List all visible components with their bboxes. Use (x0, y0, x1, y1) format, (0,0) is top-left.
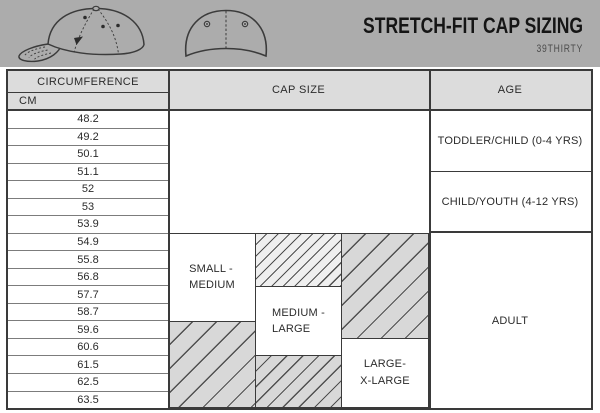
size-label-large-xlarge: LARGE- X-LARGE (342, 338, 428, 407)
cm-value-row: 53.9 (8, 216, 168, 234)
cm-value-row: 60.6 (8, 339, 168, 357)
size-label-small-medium: SMALL - MEDIUM (169, 234, 255, 320)
cap-side-view-illustration (19, 6, 144, 61)
cap-back-view-illustration (186, 11, 267, 57)
age-cell-child-youth: CHILD/YOUTH (4-12 YRS) (429, 172, 591, 233)
size-label-line: SMALL - (189, 261, 235, 278)
size-label-line: X-LARGE (360, 373, 410, 390)
cm-value-row: 53 (8, 199, 168, 217)
hatch-region-small-medium (169, 321, 255, 407)
cap-size-header: CAP SIZE (168, 71, 429, 111)
size-column-medium-large: MEDIUM - LARGE (255, 233, 343, 408)
cm-value-row: 61.5 (8, 356, 168, 374)
sizing-table: CIRCUMFERENCE CM CAP SIZE AGE 48.2 49.2 … (6, 69, 593, 410)
age-header: AGE (429, 71, 591, 111)
age-column: TODDLER/CHILD (0-4 YRS) CHILD/YOUTH (4-1… (429, 111, 591, 408)
column-divider (168, 71, 170, 408)
age-cell-toddler-child: TODDLER/CHILD (0-4 YRS) (429, 111, 591, 172)
size-column-small-medium: SMALL - MEDIUM (168, 233, 256, 408)
page-subtitle: 39THIRTY (363, 44, 583, 55)
cm-value-row: 63.5 (8, 392, 168, 409)
cm-value-row: 48.2 (8, 111, 168, 129)
banner-titles: STRETCH-FIT CAP SIZING 39THIRTY (363, 15, 583, 55)
cm-values-column: 48.2 49.2 50.1 51.1 52 53 53.9 54.9 55.8… (8, 111, 168, 408)
size-label-medium-large: MEDIUM - LARGE (256, 286, 342, 355)
column-divider (429, 71, 431, 408)
age-cell-adult: ADULT (429, 233, 591, 408)
cm-value-row: 58.7 (8, 304, 168, 322)
size-column-large-xlarge: LARGE- X-LARGE (341, 233, 429, 408)
banner: STRETCH-FIT CAP SIZING 39THIRTY (0, 0, 600, 67)
hatch-region-medium-large-lower (256, 355, 342, 407)
size-label-line: MEDIUM (189, 277, 235, 294)
cm-value-row: 59.6 (8, 321, 168, 339)
cm-value-row: 55.8 (8, 251, 168, 269)
circumference-header: CIRCUMFERENCE (8, 71, 168, 93)
hatch-region-medium-large-upper (256, 234, 342, 286)
cm-value-row: 52 (8, 181, 168, 199)
cm-value-row: 57.7 (8, 286, 168, 304)
cm-value-row: 56.8 (8, 269, 168, 287)
cm-value-row: 49.2 (8, 129, 168, 147)
size-label-line: LARGE (272, 321, 325, 338)
cm-value-row: 50.1 (8, 146, 168, 164)
page-title: STRETCH-FIT CAP SIZING (363, 15, 583, 38)
page: STRETCH-FIT CAP SIZING 39THIRTY CIRCUMFE… (0, 0, 600, 413)
cap-illustrations (14, 3, 299, 65)
hatch-region-large-xlarge (342, 234, 428, 338)
size-label-line: LARGE- (360, 356, 410, 373)
cm-value-row: 62.5 (8, 374, 168, 392)
cm-unit-header: CM (8, 93, 168, 111)
size-label-line: MEDIUM - (272, 305, 325, 322)
cm-value-row: 51.1 (8, 164, 168, 182)
cm-value-row: 54.9 (8, 234, 168, 252)
